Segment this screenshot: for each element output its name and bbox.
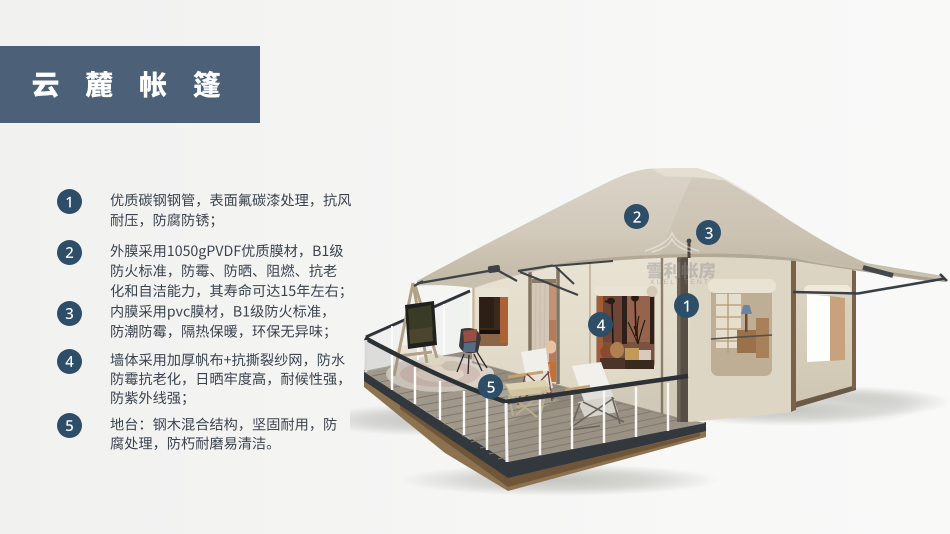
svg-text:XUELI TENT: XUELI TENT	[650, 279, 710, 286]
